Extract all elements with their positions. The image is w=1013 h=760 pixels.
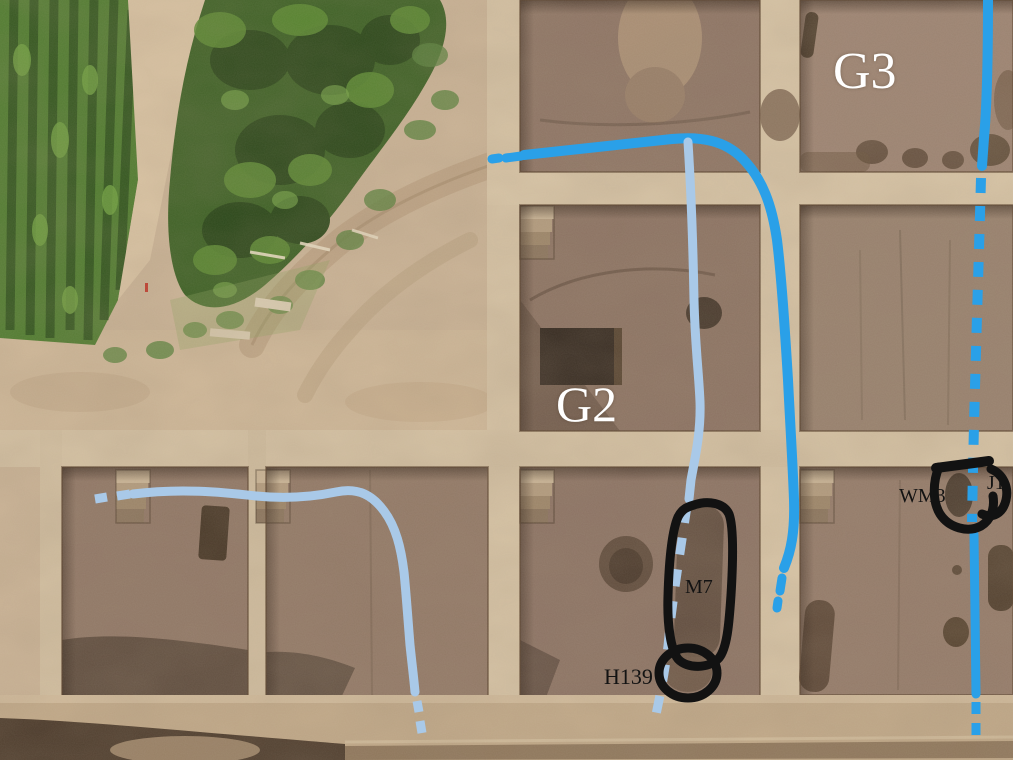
blue-ditch-end-dashes	[777, 578, 782, 608]
label-m7: M7	[685, 577, 713, 597]
texture-grain	[0, 0, 1013, 760]
blue-right-solid-bottom	[974, 534, 976, 694]
label-g3: G3	[833, 46, 897, 98]
blue-ditch-start-dashes	[492, 156, 521, 159]
site-photo-canvas	[0, 0, 1013, 760]
aerial-site-photo: G3 G2 WM3 J1 M7 H139	[0, 0, 1013, 760]
label-j1: J1	[987, 473, 1005, 493]
label-wm3: WM3	[899, 486, 946, 506]
label-g2: G2	[556, 379, 617, 429]
label-h139: H139	[604, 666, 653, 688]
j1-outline-top-bar	[936, 461, 989, 468]
